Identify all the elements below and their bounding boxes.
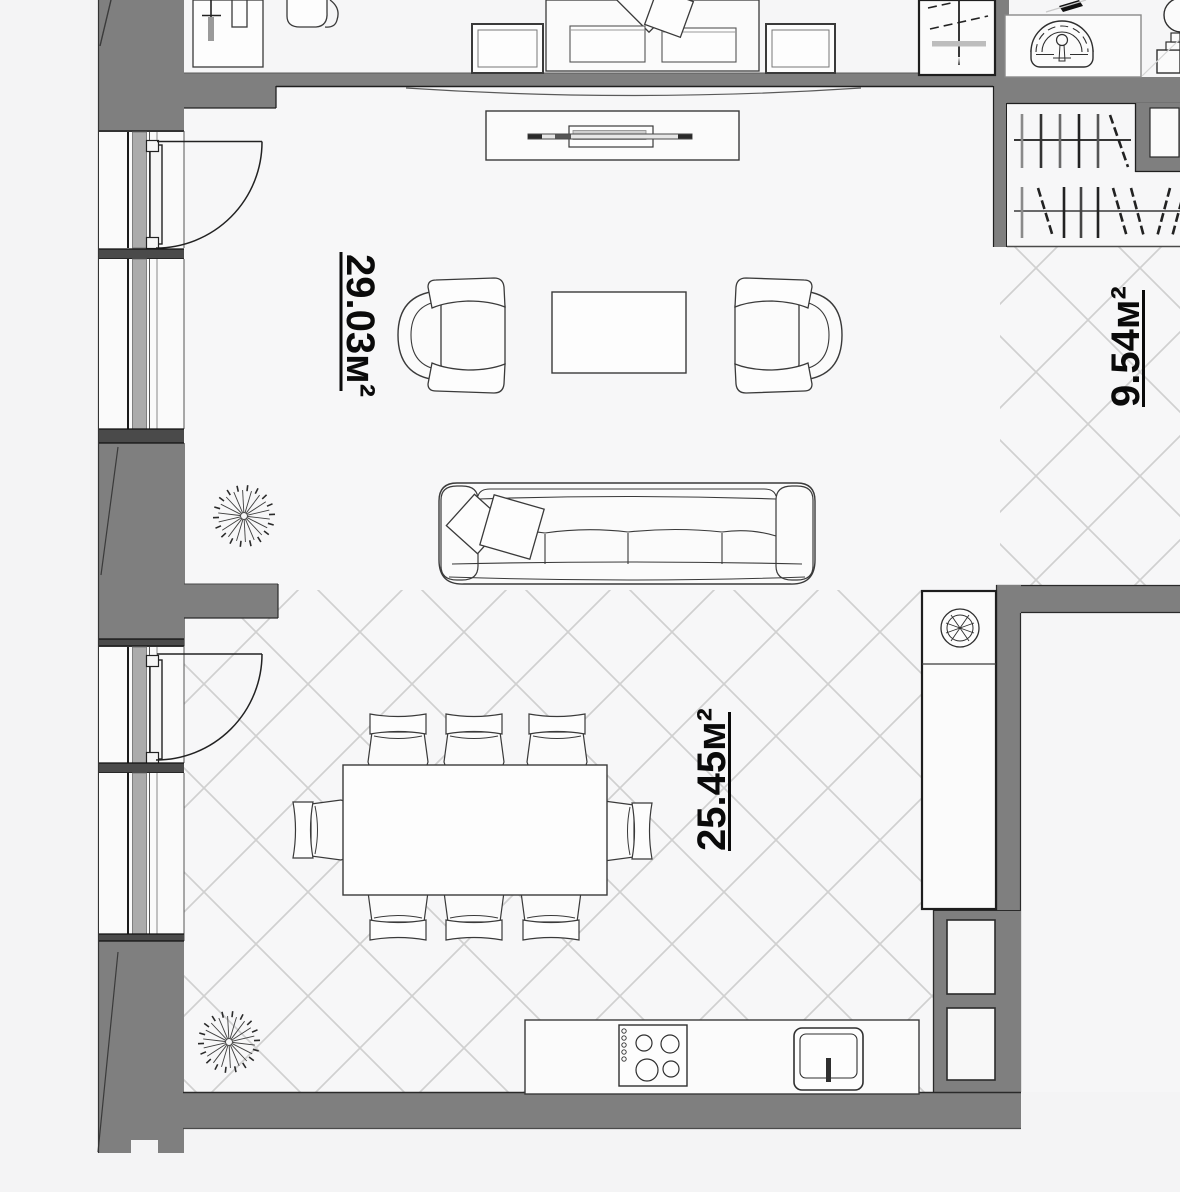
svg-text:25.45м²: 25.45м² — [690, 708, 734, 851]
svg-text:9.54м²: 9.54м² — [1104, 286, 1148, 407]
svg-text:29.03м²: 29.03м² — [338, 254, 382, 397]
